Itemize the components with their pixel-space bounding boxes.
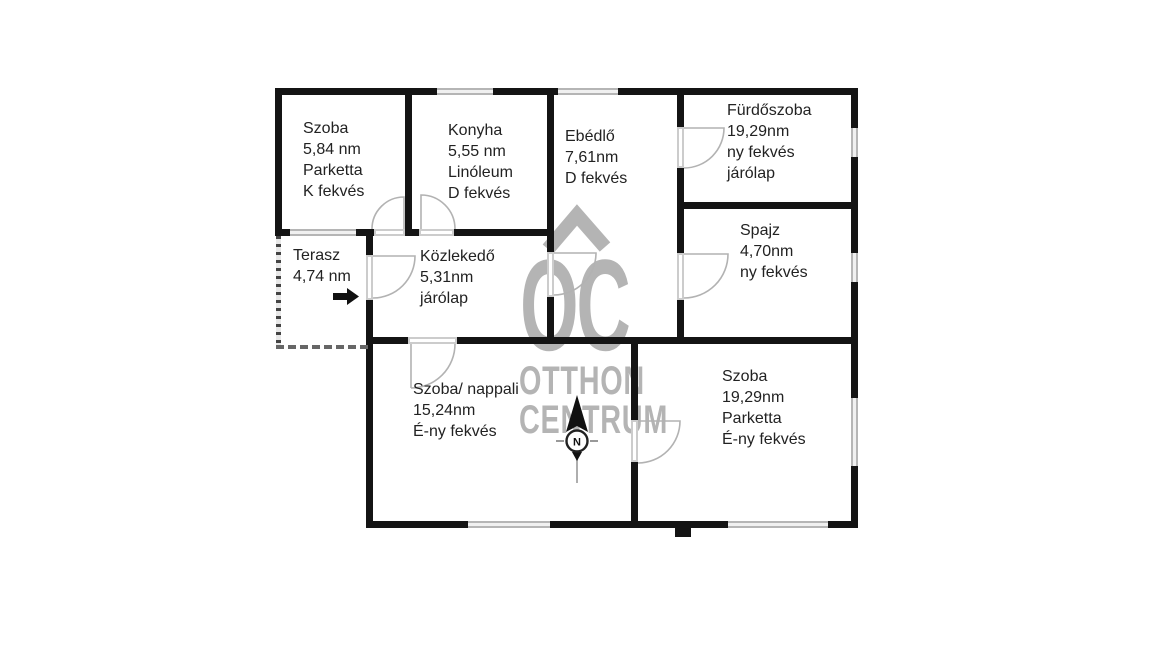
- room-label-konyha: Konyha 5,55 nm Linóleum D fekvés: [448, 120, 513, 204]
- room-label-terasz: Terasz 4,74 nm: [293, 245, 351, 287]
- floor-plan-canvas: OC OTTHON CENTRUM: [0, 0, 1152, 648]
- room-label-ebedlo: Ebédlő 7,61nm D fekvés: [565, 126, 627, 189]
- room-label-szoba-2: Szoba 19,29nm Parketta É-ny fekvés: [722, 366, 806, 450]
- room-label-furdoszoba: Fürdőszoba 19,29nm ny fekvés járólap: [727, 100, 812, 184]
- compass-icon: N: [556, 395, 598, 483]
- room-label-szoba-1: Szoba 5,84 nm Parketta K fekvés: [303, 118, 364, 202]
- room-label-kozlekedo: Közlekedő 5,31nm járólap: [420, 246, 495, 309]
- entrance-arrow-icon: [333, 288, 359, 305]
- room-label-nappali: Szoba/ nappali 15,24nm É-ny fekvés: [413, 379, 519, 442]
- compass-north-label: N: [573, 437, 581, 449]
- room-label-spajz: Spajz 4,70nm ny fekvés: [740, 220, 808, 283]
